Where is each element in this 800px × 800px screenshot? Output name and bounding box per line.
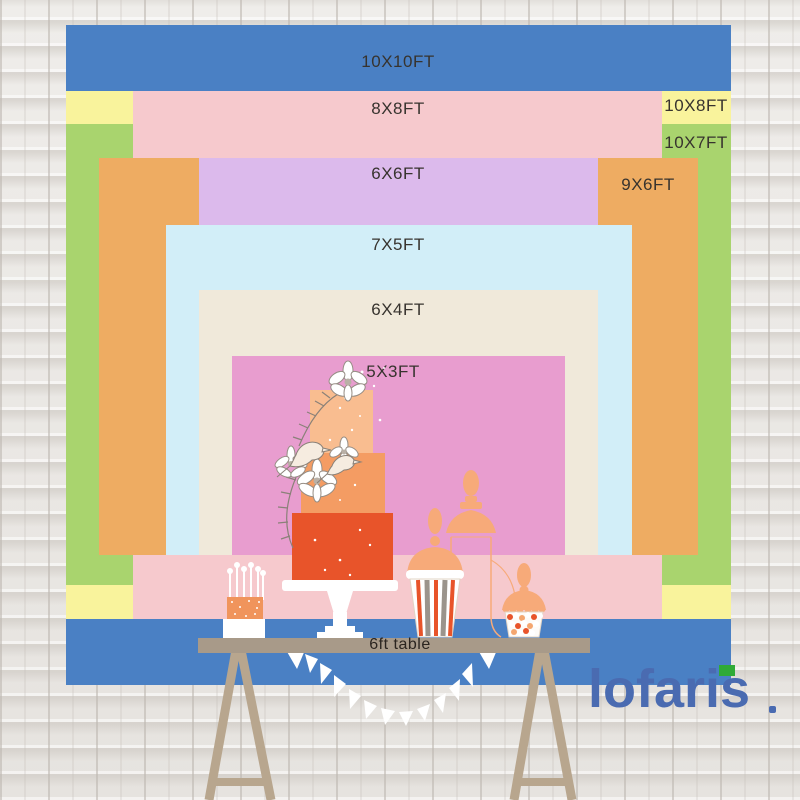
logo-period-dot-icon: [769, 706, 776, 713]
three-tier-cake-icon: [273, 361, 398, 638]
lofaris-logo: lofaris: [588, 662, 798, 722]
table-size-label: 6ft table: [369, 637, 430, 653]
brick-wall-background: 10X10FT 10X8FT 10X7FT 8X8FT 9X6FT 6X6FT …: [0, 0, 800, 800]
logo-green-mark-icon: [719, 665, 735, 676]
bunting-flags-icon: [286, 650, 497, 726]
cake-pops-icon: [223, 562, 266, 638]
candy-jar-icon: [502, 563, 546, 637]
trestle-legs-icon: [209, 650, 572, 800]
